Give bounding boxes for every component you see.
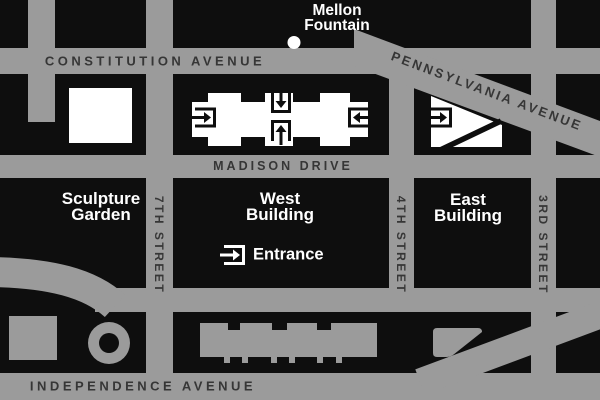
- sculpture-garden-pavilion-footprint: [69, 88, 132, 143]
- fourth-street-road: [389, 48, 414, 312]
- museum-footprint-crenellated: [200, 323, 377, 363]
- square-building-footprint: [9, 316, 57, 360]
- map-canvas: [0, 0, 600, 400]
- round-building-courtyard: [99, 333, 119, 353]
- national-gallery-map: CONSTITUTION AVENUE MADISON DRIVE INDEPE…: [0, 0, 600, 400]
- jefferson-drive-road: [95, 288, 600, 312]
- constitution-avenue-road: [0, 48, 600, 74]
- fountain-dot-icon: [288, 36, 301, 49]
- madison-drive-road: [0, 155, 600, 178]
- independence-avenue-road: [0, 373, 600, 400]
